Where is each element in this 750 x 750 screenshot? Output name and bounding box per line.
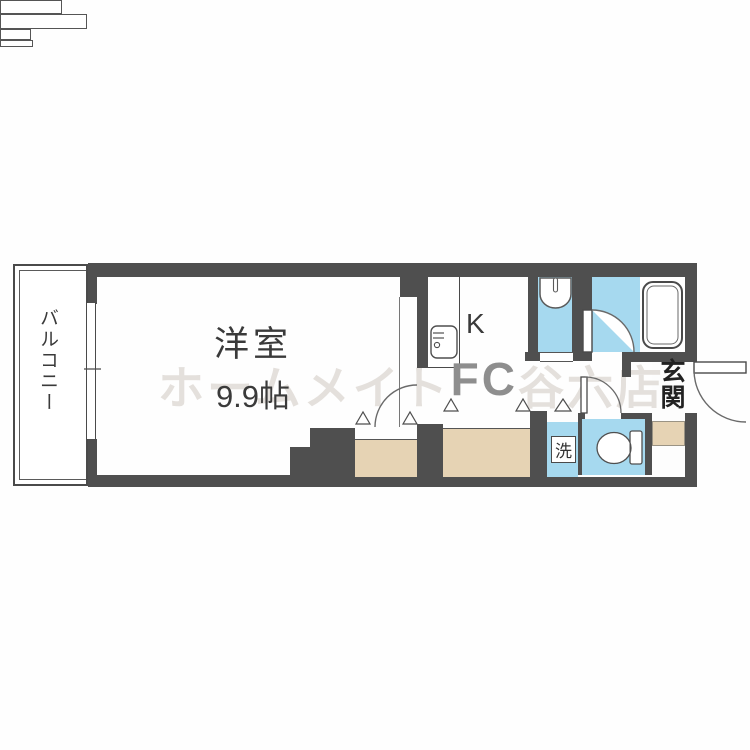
room-size: 9.9帖 <box>168 371 338 416</box>
kitchen-label: K <box>466 308 485 340</box>
bathtub-icon <box>643 282 682 348</box>
floorplan-canvas: ホームメイト FC 谷六店 バルコニー <box>0 0 750 750</box>
kitchen-faucet-icon <box>434 342 439 347</box>
entrance-label: 玄関 <box>653 358 689 416</box>
closet1-folding-door-icon <box>356 412 370 424</box>
toilet-bowl-icon <box>597 433 631 464</box>
entrance-door-leaf <box>694 362 746 373</box>
laundry-folding-door-icon <box>555 399 571 411</box>
kitchen-sink-icon <box>431 326 457 358</box>
entrance-door-arc <box>694 370 746 422</box>
room-name: 洋室 <box>168 316 338 367</box>
balcony-label: バルコニー <box>34 308 61 458</box>
closet2-folding-door-icon <box>444 399 458 411</box>
bathroom-door-arc <box>592 310 634 352</box>
toilet-door-arc <box>585 377 621 413</box>
room-label: 洋室 9.9帖 <box>168 316 338 416</box>
closet2-folding-door-icon <box>516 399 530 411</box>
washbasin-faucet-icon <box>554 278 558 292</box>
toilet-door-leaf <box>581 377 587 413</box>
closet1-folding-door-icon <box>403 412 417 424</box>
toilet-tank-icon <box>630 431 642 464</box>
bathroom-door-leaf <box>583 310 592 352</box>
fixtures-layer <box>0 0 750 750</box>
